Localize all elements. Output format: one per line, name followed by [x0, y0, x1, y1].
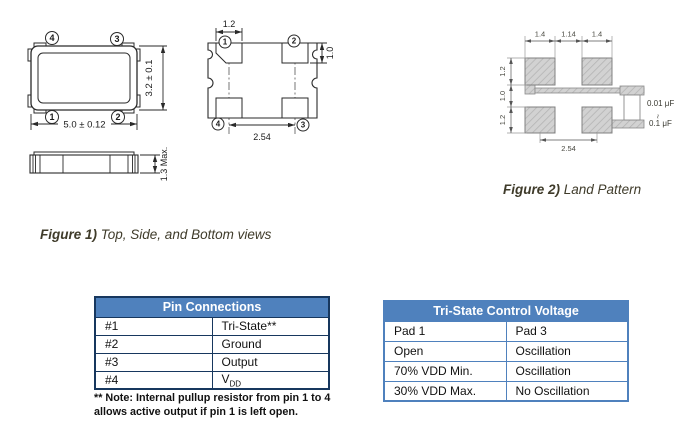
pad1-cell: 70% VDD Min.: [384, 361, 506, 381]
pad1-cell: Pad 1: [384, 321, 506, 341]
dim-label-lp-pitch: 2.54: [561, 144, 576, 153]
figure1-caption: Figure 1) Top, Side, and Bottom views: [40, 227, 271, 242]
pin-marker-4: 4: [216, 120, 221, 129]
table-row: Pad 1 Pad 3: [384, 321, 628, 341]
pin-note-line1: ** Note: Internal pullup resistor from p…: [94, 392, 350, 406]
tristate-header-row: Tri-State Control Voltage: [384, 301, 628, 321]
pin-number-cell: #4: [95, 371, 212, 389]
pad1-cell: Open: [384, 341, 506, 361]
pin-marker-1: 1: [223, 38, 228, 47]
pin-number-cell: #1: [95, 317, 212, 335]
dim-label-pad-h-bottom: 1.2: [498, 115, 507, 125]
dim-label-pad-height: 1.0: [325, 47, 335, 60]
pin-function-cell: Output: [212, 353, 329, 371]
tristate-table: Tri-State Control Voltage Pad 1 Pad 3 Op…: [383, 300, 629, 402]
pin-function-subscript: DD: [230, 379, 242, 388]
pin-function-text: Ground: [222, 337, 262, 351]
land-pad-4: [525, 107, 555, 133]
cap-value-max: 0.1 μF: [649, 119, 672, 128]
pad1-cell: 30% VDD Max.: [384, 381, 506, 401]
dim-label-thickness: 1.3 Max.: [159, 147, 169, 181]
table-row: #2 Ground: [95, 335, 329, 353]
capacitor-top-plate: [620, 86, 644, 95]
figure2-caption-number: Figure 2): [503, 182, 560, 197]
pin-function-cell: Ground: [212, 335, 329, 353]
figure2-caption-text: Land Pattern: [560, 182, 641, 197]
side-body: [30, 155, 138, 173]
dim-label-row-gap: 1.0: [498, 91, 507, 101]
pin-marker-3: 3: [301, 121, 306, 130]
land-pad-3: [582, 107, 612, 133]
thickness-dimension: [140, 155, 160, 173]
figure1-caption-number: Figure 1): [40, 227, 97, 242]
pin-marker-2: 2: [292, 37, 297, 46]
capacitor-bottom-plate: [612, 120, 644, 128]
table-row: 30% VDD Max. No Oscillation: [384, 381, 628, 401]
tristate-title: Tri-State Control Voltage: [384, 301, 628, 321]
pad3-cell: Oscillation: [506, 341, 628, 361]
pin-marker-2: 2: [115, 112, 120, 122]
table-row: #4 VDD: [95, 371, 329, 389]
table-row: 70% VDD Min. Oscillation: [384, 361, 628, 381]
land-pads: [525, 58, 612, 133]
top-extension-lines: [525, 36, 612, 58]
dim-label-width: 5.0 ± 0.12: [63, 120, 105, 131]
table-row: #1 Tri-State**: [95, 317, 329, 335]
pin-marker-1: 1: [49, 112, 54, 122]
dim-label-height: 3.2 ± 0.1: [144, 60, 155, 97]
figure1-caption-text: Top, Side, and Bottom views: [97, 227, 271, 242]
pin-connections-table: Pin Connections #1 Tri-State** #2 Ground…: [94, 296, 330, 390]
table-row: Open Oscillation: [384, 341, 628, 361]
cap-value-min: 0.01 μF: [647, 99, 674, 108]
side-view-drawing: 1.3 Max.: [25, 147, 180, 192]
pin-table-header-row: Pin Connections: [95, 297, 329, 317]
pin-function-text: Tri-State**: [222, 319, 277, 333]
land-pad-1: [525, 58, 555, 85]
dim-label-pad-gap: 1.14: [561, 30, 576, 39]
pin-function-cell: VDD: [212, 371, 329, 389]
pin-function-text: Output: [222, 355, 258, 369]
land-pattern-drawing: 1.4 1.14 1.4 1.2 1.0 1.2 2.54 0.01 μF ~ …: [483, 12, 698, 167]
dim-label-pitch: 2.54: [253, 132, 271, 142]
dim-label-pad-h-top: 1.2: [498, 66, 507, 76]
pad3-cell: Oscillation: [506, 361, 628, 381]
pin-number-cell: #2: [95, 335, 212, 353]
bottom-extension-lines: [540, 133, 597, 143]
package-outline: [31, 46, 137, 110]
pad3-cell: No Oscillation: [506, 381, 628, 401]
dim-label-pad-width: 1.2: [223, 19, 236, 29]
dim-label-pad-w-right: 1.4: [592, 30, 602, 39]
top-view-drawing: 5.0 ± 0.12 3.2 ± 0.1 4 3 1 2: [25, 30, 195, 135]
datasheet-page: 5.0 ± 0.12 3.2 ± 0.1 4 3 1 2: [0, 0, 700, 436]
left-extension-lines: [507, 58, 527, 133]
figure2-caption: Figure 2) Land Pattern: [503, 182, 641, 197]
dim-label-pad-w-left: 1.4: [535, 30, 545, 39]
pin-function-cell: Tri-State**: [212, 317, 329, 335]
pin-number-cell: #3: [95, 353, 212, 371]
pad3-cell: Pad 3: [506, 321, 628, 341]
pin-note-line2: allows active output if pin 1 is left op…: [94, 406, 350, 420]
bottom-view-drawing: 1.2 1.0 2.54 1 2 4 3: [197, 8, 347, 148]
pin-note: ** Note: Internal pullup resistor from p…: [94, 392, 350, 420]
pin-marker-3: 3: [114, 34, 119, 44]
capacitor-body: [624, 95, 640, 120]
pin-marker-4: 4: [49, 33, 54, 43]
land-pad-2: [582, 58, 612, 85]
table-row: #3 Output: [95, 353, 329, 371]
pin-table-title: Pin Connections: [95, 297, 329, 317]
pin-function-text: V: [222, 372, 230, 386]
